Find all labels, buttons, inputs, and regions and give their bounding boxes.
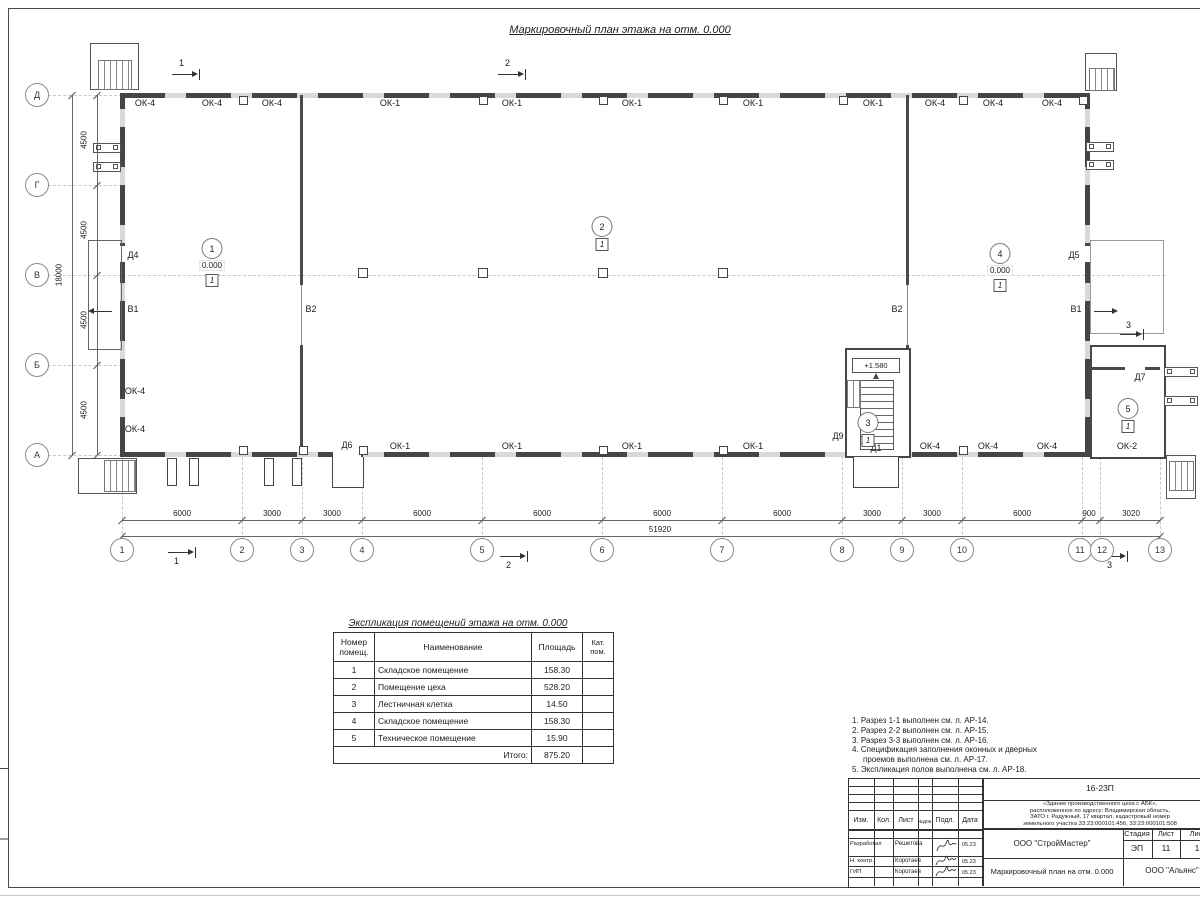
tb-line <box>848 877 982 878</box>
project-line: расположенное по адресу: Владимирская об… <box>1030 808 1170 814</box>
window-label: ОК-4 <box>262 98 282 108</box>
room-area: 15.90 <box>532 730 583 747</box>
room-elevation: 0.000 <box>199 260 225 271</box>
section-mark-bar <box>527 551 528 562</box>
tb-line <box>848 802 982 803</box>
col-ndok: №док. <box>918 819 933 825</box>
floor-type-mark: 1 <box>862 434 875 447</box>
wall-interior-1-gate <box>301 285 302 345</box>
dim-value: 6000 <box>533 509 551 518</box>
project-line: ЗАТО г. Радужный, 17 квартал, кадастровы… <box>1030 814 1170 820</box>
window-label: ОК-1 <box>380 98 400 108</box>
floor-type-mark: 1 <box>994 279 1007 292</box>
axis-line-b <box>48 365 122 366</box>
window-label: ОК-4 <box>202 98 222 108</box>
frame-left <box>8 8 9 887</box>
column <box>598 268 608 278</box>
axis-line-g <box>48 185 122 186</box>
section-mark-arrow <box>518 71 524 77</box>
axis-line-6 <box>602 457 603 539</box>
louver <box>1164 396 1198 406</box>
sheet-label: Лист <box>1158 829 1174 838</box>
gate-arrow-left-head <box>88 308 94 314</box>
room-cat <box>583 696 614 713</box>
total-cat <box>583 747 614 764</box>
louver <box>1086 142 1114 152</box>
gate-label-b1: В1 <box>1070 304 1081 314</box>
exterior-stair-bottom-right-treads <box>1169 461 1194 491</box>
axis-bubble-3: 3 <box>290 538 314 562</box>
col-list: Лист <box>898 817 913 824</box>
gate-label-b1: В1 <box>127 304 138 314</box>
col-header-num: Номер помещ. <box>334 633 375 662</box>
total-area: 875.20 <box>532 747 583 764</box>
sheets-value: 1 <box>1195 843 1200 853</box>
axis-bubble-4: 4 <box>350 538 374 562</box>
door-label-d5: Д5 <box>1068 250 1079 260</box>
wall-interior-2-upper <box>906 95 909 285</box>
column <box>478 268 488 278</box>
col-data: Дата <box>962 817 978 824</box>
section-mark-3: 3 <box>1107 560 1112 570</box>
pilaster <box>239 96 248 105</box>
table-row: 3 Лестничная клетка 14.50 <box>334 696 614 713</box>
axis-bubble-7: 7 <box>710 538 734 562</box>
window-label: ОК-4 <box>1037 441 1057 451</box>
pilaster <box>719 96 728 105</box>
stage-value: ЭП <box>1131 843 1143 853</box>
section-mark-arrow <box>1120 553 1126 559</box>
dim-line-left-total <box>72 95 73 455</box>
window-label: ОК-4 <box>125 424 145 434</box>
note-line: проемов выполнена см. л. АР-17. <box>852 755 1037 765</box>
wall-bottom <box>120 452 1164 457</box>
frame-tick-2 <box>0 838 8 840</box>
pilaster <box>839 96 848 105</box>
floor-type-mark: 1 <box>596 238 609 251</box>
room-name: Помещение цеха <box>375 679 532 696</box>
section-mark-1: 1 <box>174 556 179 566</box>
tb-line <box>848 786 982 787</box>
room-area: 528.20 <box>532 679 583 696</box>
pilaster <box>959 96 968 105</box>
window-label: ОК-1 <box>502 98 522 108</box>
floor-type-mark: 1 <box>1122 420 1135 433</box>
explication-title: Экспликация помещений этажа на отм. 0.00… <box>349 618 568 629</box>
axis-line-7 <box>722 457 723 539</box>
room-area: 14.50 <box>532 696 583 713</box>
buttress <box>167 458 177 486</box>
louver <box>1086 160 1114 170</box>
col-header-cat: Кат. пом. <box>583 633 614 662</box>
section-mark-bar <box>199 69 200 80</box>
window-label: ОК-1 <box>502 441 522 451</box>
buttress <box>292 458 302 486</box>
date: 05.23 <box>962 842 976 848</box>
axis-bubble-1: 1 <box>110 538 134 562</box>
section-mark-line <box>500 556 522 557</box>
wall-interior-2-gate <box>907 285 908 345</box>
axis-bubble-12: 12 <box>1090 538 1114 562</box>
explication-table: Номер помещ. Наименование Площадь Кат. п… <box>333 632 614 764</box>
date: 05.23 <box>962 859 976 865</box>
dim-value: 3000 <box>923 509 941 518</box>
frame-top <box>8 8 1200 9</box>
dim-value: 4500 <box>80 401 89 419</box>
axis-line-5 <box>482 457 483 539</box>
table-row: 4 Складское помещение 158.30 <box>334 713 614 730</box>
axis-line-3 <box>302 457 303 539</box>
pilaster <box>299 446 308 455</box>
section-mark-bar <box>1143 329 1144 340</box>
room-name: Складское помещение <box>375 662 532 679</box>
gate-label-b2: В2 <box>891 304 902 314</box>
wall-interior-1-upper <box>300 95 303 285</box>
dim-value: 6000 <box>773 509 791 518</box>
tb-line <box>848 829 982 831</box>
tb-line <box>1123 840 1200 841</box>
table-header-row: Номер помещ. Наименование Площадь Кат. п… <box>334 633 614 662</box>
window-label: ОК-1 <box>743 441 763 451</box>
pilaster <box>599 96 608 105</box>
vestibule-left <box>88 240 122 350</box>
tb-line <box>1180 828 1181 858</box>
section-mark-2: 2 <box>505 58 510 68</box>
tb-line <box>982 778 984 886</box>
room-number: 4 <box>990 243 1011 264</box>
entry-porch-d1 <box>853 457 899 488</box>
axis-line-12 <box>1100 457 1101 539</box>
dim-value: 900 <box>1082 509 1095 518</box>
pilaster <box>959 446 968 455</box>
exterior-stair-bottom-left-treads <box>104 460 136 492</box>
frame-tick-1 <box>0 768 8 769</box>
window-label: ОК-4 <box>1042 98 1062 108</box>
window-label: ОК-4 <box>135 98 155 108</box>
room-cat <box>583 730 614 747</box>
note-line: 3. Разрез 3-3 выполнен см. л. АР-16. <box>852 736 1037 746</box>
room-cat <box>583 662 614 679</box>
axis-bubble-11: 11 <box>1068 538 1092 562</box>
dim-line-bottom-1 <box>122 520 1160 521</box>
dim-value: 4500 <box>80 311 89 329</box>
stair-direction-arrow <box>873 373 879 379</box>
room-num: 5 <box>334 730 375 747</box>
tb-line <box>1152 828 1153 858</box>
room-num: 3 <box>334 696 375 713</box>
table-row: 1 Складское помещение 158.30 <box>334 662 614 679</box>
dim-value: 6000 <box>173 509 191 518</box>
tb-line <box>848 794 982 795</box>
column <box>718 268 728 278</box>
role: ГИП <box>850 869 861 875</box>
room-number: 3 <box>858 412 879 433</box>
axis-bubble-13: 13 <box>1148 538 1172 562</box>
sheet-value: 11 <box>1162 843 1171 853</box>
room-name: Лестничная клетка <box>375 696 532 713</box>
section-mark-3: 3 <box>1126 320 1131 330</box>
dim-value: 6000 <box>1013 509 1031 518</box>
dim-value: 3000 <box>323 509 341 518</box>
room-name: Складское помещение <box>375 713 532 730</box>
window-label: ОК-4 <box>983 98 1003 108</box>
axis-bubble-5: 5 <box>470 538 494 562</box>
role: Разработал <box>850 841 882 847</box>
axis-line-2 <box>242 457 243 539</box>
pilaster <box>599 446 608 455</box>
window-label: ОК-1 <box>622 441 642 451</box>
dim-line-bottom-total <box>122 536 1160 537</box>
col-izm: Изм. <box>854 817 869 824</box>
dim-total: 18000 <box>55 264 64 286</box>
doc-number: 16-23П <box>1086 783 1114 793</box>
dim-value: 3020 <box>1122 509 1140 518</box>
dim-total: 51920 <box>649 525 671 534</box>
section-mark-arrow <box>192 71 198 77</box>
stair-landing-elevation: +1.580 <box>852 358 900 373</box>
project-line: земельного участка 33:23:000101:456, 33:… <box>1023 821 1177 827</box>
tb-line <box>848 856 982 857</box>
room-num: 4 <box>334 713 375 730</box>
door-label-d9: Д9 <box>832 431 843 441</box>
dim-value: 6000 <box>653 509 671 518</box>
axis-line-10 <box>962 457 963 539</box>
axis-line-13 <box>1160 457 1161 539</box>
signature <box>934 864 958 880</box>
total-label: Итого: <box>334 747 532 764</box>
axis-bubble-10: 10 <box>950 538 974 562</box>
section-mark-line <box>168 552 190 553</box>
pilaster <box>239 446 248 455</box>
buttress <box>189 458 199 486</box>
buttress <box>264 458 274 486</box>
section-mark-1: 1 <box>179 58 184 68</box>
section-mark-bar <box>1127 551 1128 562</box>
room-number: 5 <box>1118 398 1139 419</box>
axis-line-d <box>48 95 122 96</box>
role: Н. контр. <box>850 858 874 864</box>
pilaster <box>359 446 368 455</box>
door-label-d6: Д6 <box>341 440 352 450</box>
stair-flight-small <box>847 380 861 408</box>
window-label: ОК-4 <box>125 386 145 396</box>
axis-line-a <box>48 455 122 456</box>
axis-bubble-8: 8 <box>830 538 854 562</box>
column <box>358 268 368 278</box>
window-label: ОК-1 <box>863 98 883 108</box>
door-gap-d7 <box>1125 367 1145 370</box>
table-row: 5 Техническое помещение 15.90 <box>334 730 614 747</box>
room-cat <box>583 679 614 696</box>
tb-line <box>848 810 982 811</box>
window-label: ОК-4 <box>978 441 998 451</box>
entry-porch-d6 <box>332 457 364 488</box>
axis-bubble-v: В <box>25 263 49 287</box>
date: 05.23 <box>962 870 976 876</box>
room-name: Техническое помещение <box>375 730 532 747</box>
axis-bubble-d: Д <box>25 83 49 107</box>
axis-bubble-6: 6 <box>590 538 614 562</box>
wall-interior-1-lower <box>300 345 303 455</box>
person-name: Решетова <box>895 841 923 847</box>
window-label: ОК-2 <box>1117 441 1137 451</box>
room-num: 1 <box>334 662 375 679</box>
note-line: 2. Разрез 2-2 выполнен см. л. АР-15. <box>852 726 1037 736</box>
room-number: 1 <box>202 238 223 259</box>
tb-line <box>982 858 1200 859</box>
window-label: ОК-1 <box>622 98 642 108</box>
col-header-area: Площадь <box>532 633 583 662</box>
col-podl: Подл. <box>936 817 955 824</box>
org-name: ООО "СтройМастер" <box>1013 839 1090 848</box>
pilaster <box>719 446 728 455</box>
axis-bubble-9: 9 <box>890 538 914 562</box>
room-elevation: 0.000 <box>987 265 1013 276</box>
pilaster <box>1079 96 1088 105</box>
page-edge-line <box>0 895 1200 896</box>
dim-value: 4500 <box>80 221 89 239</box>
person-name: Коротаев <box>895 858 921 864</box>
louver <box>1164 367 1198 377</box>
room-cat <box>583 713 614 730</box>
notes-list: 1. Разрез 1-1 выполнен см. л. АР-14. 2. … <box>852 716 1037 775</box>
gate-arrow-right-head <box>1112 308 1118 314</box>
dim-value: 6000 <box>413 509 431 518</box>
tb-line <box>848 866 982 867</box>
exterior-stair-top-right-treads <box>1089 68 1115 91</box>
axis-bubble-a: А <box>25 443 49 467</box>
drawing-title: Маркировочный план на отм. 0.000 <box>991 867 1114 876</box>
section-mark-line <box>498 74 520 75</box>
drawing-sheet: { "page": { "title": "Маркировочный план… <box>0 0 1200 900</box>
dim-value: 4500 <box>80 131 89 149</box>
window-label: ОК-1 <box>390 441 410 451</box>
sheets-label: Лис <box>1190 829 1200 838</box>
axis-bubble-2: 2 <box>230 538 254 562</box>
dim-value: 3000 <box>263 509 281 518</box>
window-label: ОК-1 <box>743 98 763 108</box>
door-label-d7: Д7 <box>1134 372 1145 382</box>
tb-line <box>848 838 982 839</box>
dim-value: 3000 <box>863 509 881 518</box>
axis-bubble-g: Г <box>25 173 49 197</box>
section-mark-arrow <box>520 553 526 559</box>
col-kol: Кол. <box>877 817 891 824</box>
section-mark-bar <box>525 69 526 80</box>
table-row: 2 Помещение цеха 528.20 <box>334 679 614 696</box>
room-area: 158.30 <box>532 662 583 679</box>
door-label-d4: Д4 <box>127 250 138 260</box>
axis-line-11 <box>1082 457 1083 539</box>
col-header-name: Наименование <box>375 633 532 662</box>
axis-bubble-b: Б <box>25 353 49 377</box>
project-line: «Здание производственного цеха с АБК», <box>1043 801 1157 807</box>
note-line: 1. Разрез 1-1 выполнен см. л. АР-14. <box>852 716 1037 726</box>
note-line: 4. Спецификация заполнения оконных и две… <box>852 745 1037 755</box>
stage-label: Стадия <box>1124 829 1150 838</box>
page-title: Маркировочный план этажа на отм. 0.000 <box>509 24 731 36</box>
room-area: 158.30 <box>532 713 583 730</box>
note-line: 5. Экспликация полов выполнена см. л. АР… <box>852 765 1037 775</box>
section-mark-line <box>172 74 194 75</box>
person-name: Коротаев <box>895 869 921 875</box>
window-label: ОК-4 <box>925 98 945 108</box>
room-num: 2 <box>334 679 375 696</box>
section-mark-arrow <box>1136 331 1142 337</box>
axis-line-9 <box>902 457 903 539</box>
pilaster <box>479 96 488 105</box>
floor-type-mark: 1 <box>206 274 219 287</box>
section-mark-bar <box>195 547 196 558</box>
gate-label-b2: В2 <box>305 304 316 314</box>
window-label: ОК-4 <box>920 441 940 451</box>
axis-line-8 <box>842 457 843 539</box>
room-number: 2 <box>592 216 613 237</box>
table-total-row: Итого: 875.20 <box>334 747 614 764</box>
section-mark-arrow <box>188 549 194 555</box>
section-mark-2: 2 <box>506 560 511 570</box>
gate-arrow-right <box>1094 311 1112 312</box>
org2-name: ООО "Альянс" <box>1145 866 1199 875</box>
exterior-stair-top-left-treads <box>98 60 132 90</box>
